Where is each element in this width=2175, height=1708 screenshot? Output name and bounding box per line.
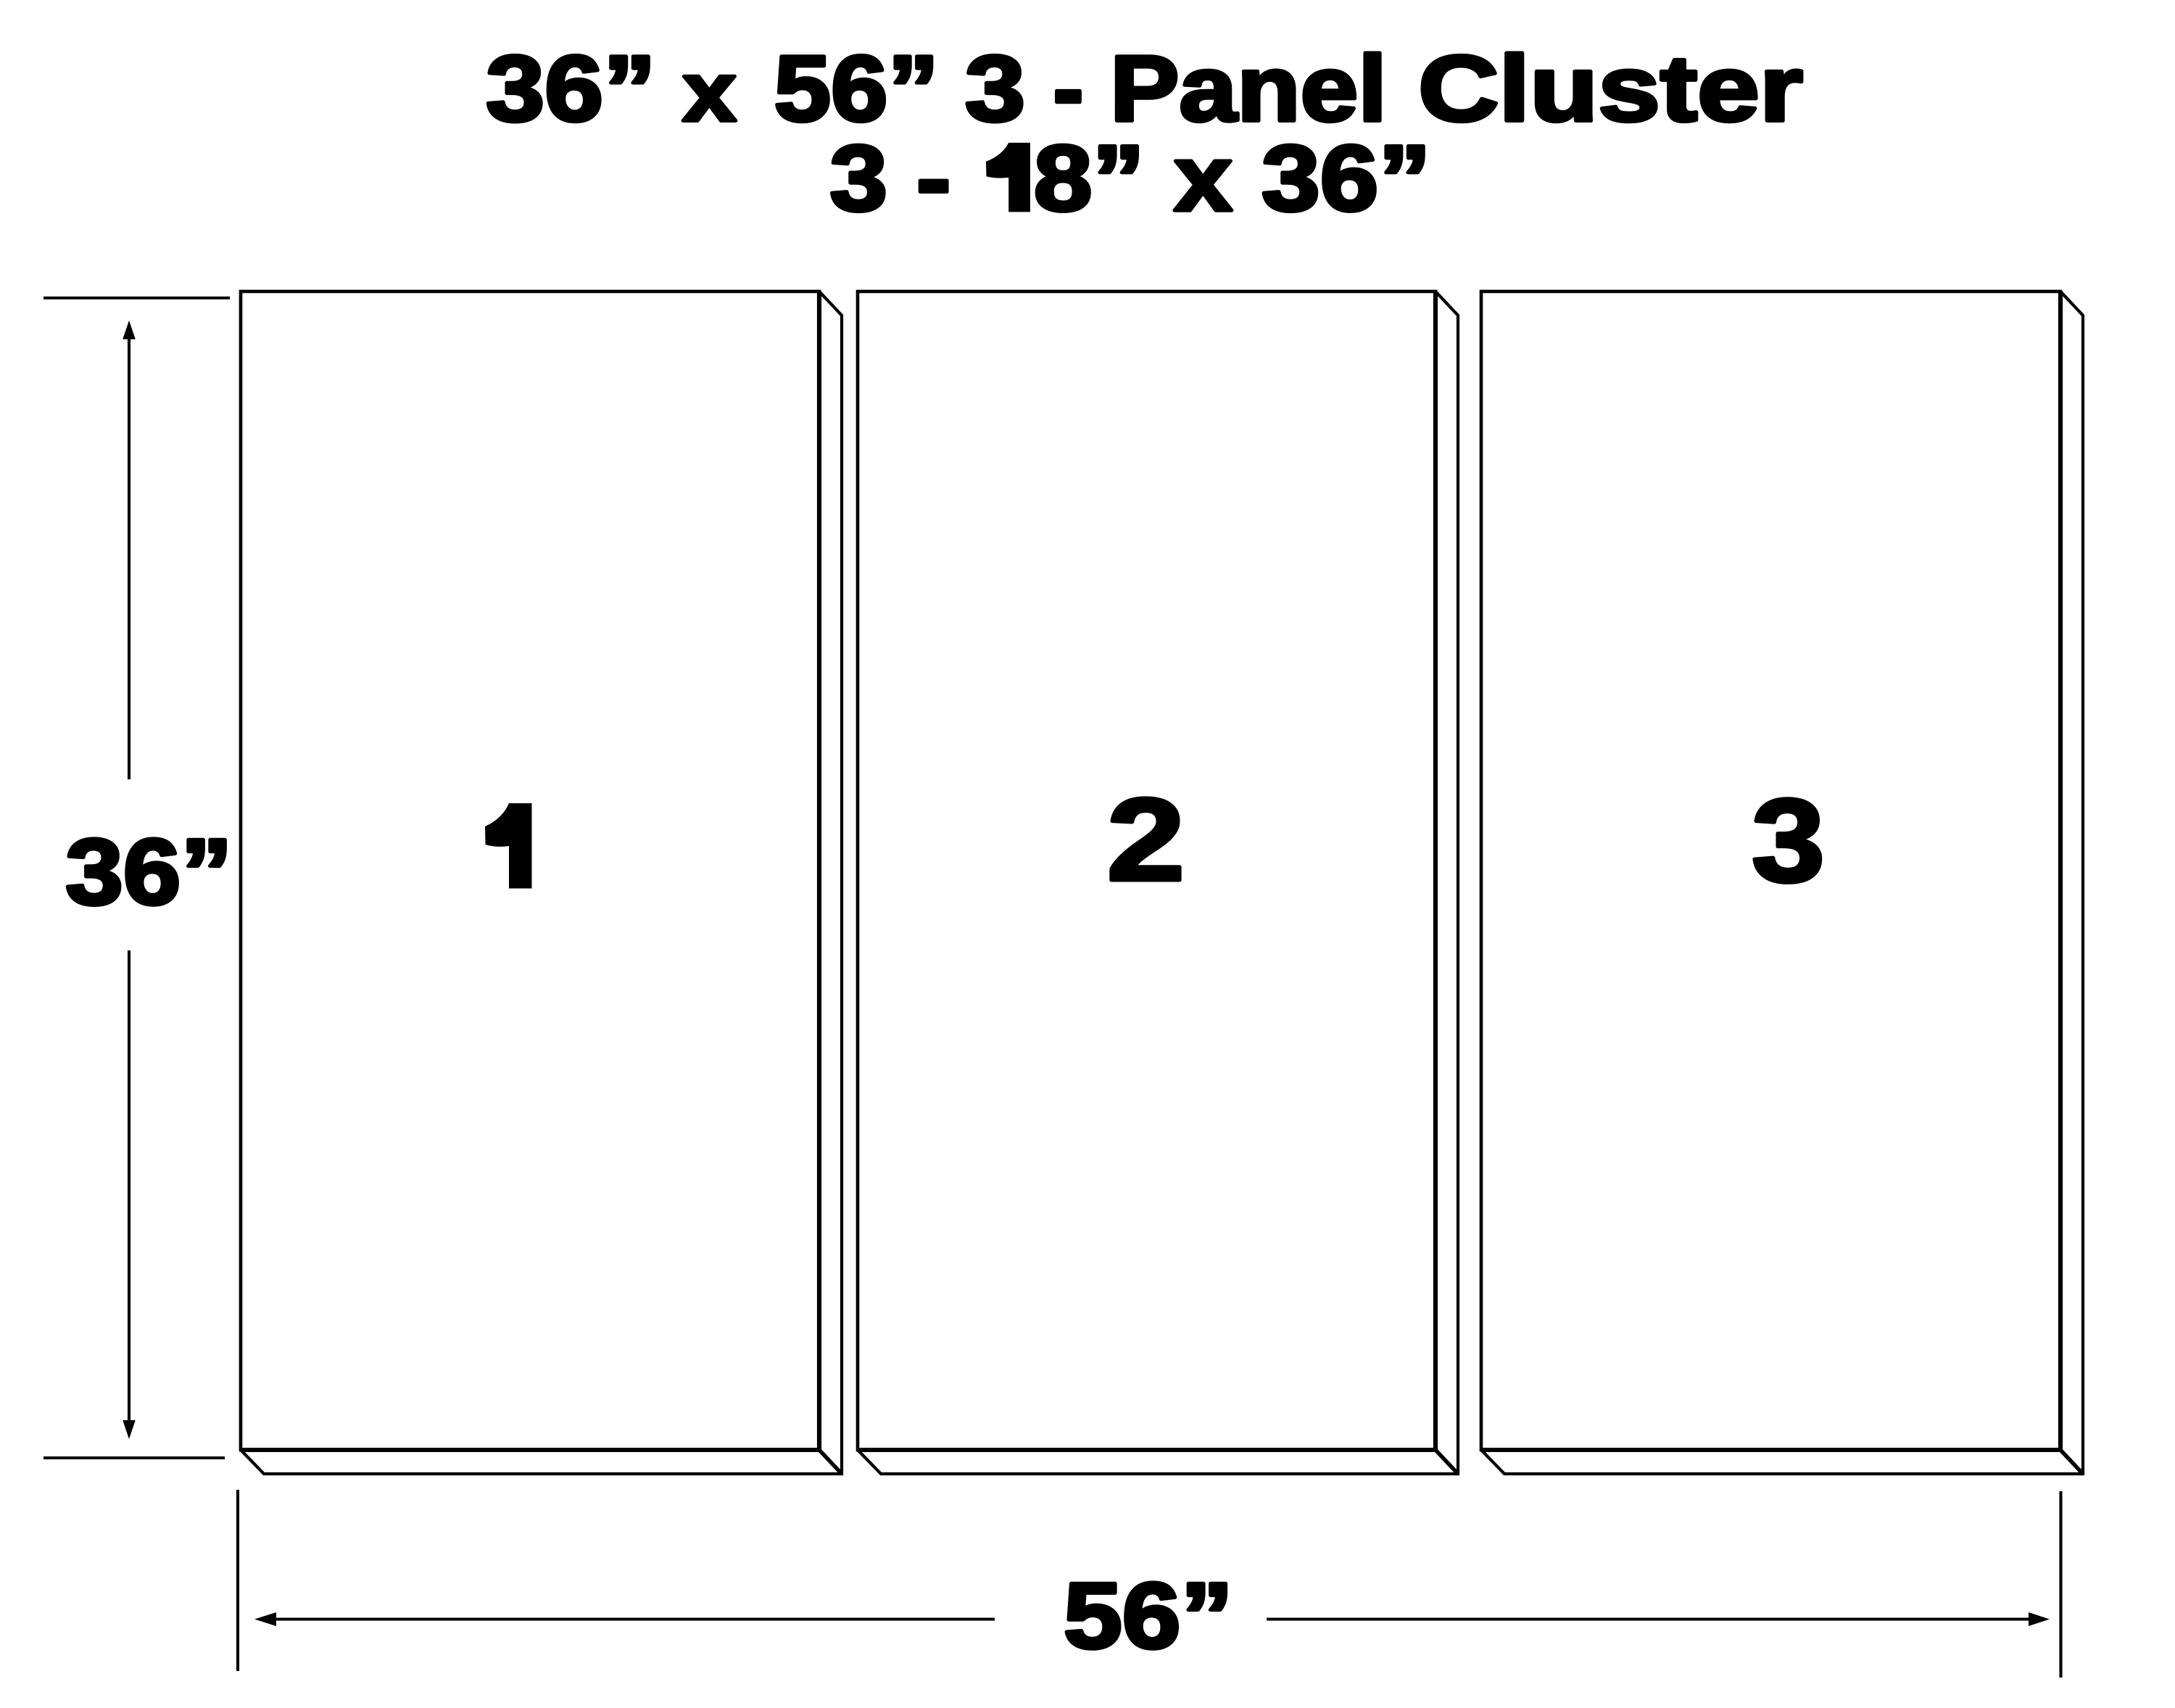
svg-text:2: 2 <box>1107 774 1185 905</box>
svg-text:Cluster: Cluster <box>1418 36 1803 141</box>
svg-text:56”: 56” <box>774 36 940 141</box>
svg-text:56”: 56” <box>1064 1564 1233 1668</box>
svg-text:8” x 36”: 8” x 36” <box>1034 127 1431 231</box>
svg-text:36”: 36” <box>486 37 656 141</box>
svg-text:x: x <box>682 45 736 138</box>
svg-text:Panel: Panel <box>1110 36 1387 141</box>
svg-text:3 -: 3 - <box>829 126 950 231</box>
svg-text:3: 3 <box>1752 774 1825 906</box>
svg-text:-: - <box>1053 37 1084 141</box>
svg-text:3: 3 <box>965 36 1025 141</box>
svg-text:36”: 36” <box>65 819 232 924</box>
